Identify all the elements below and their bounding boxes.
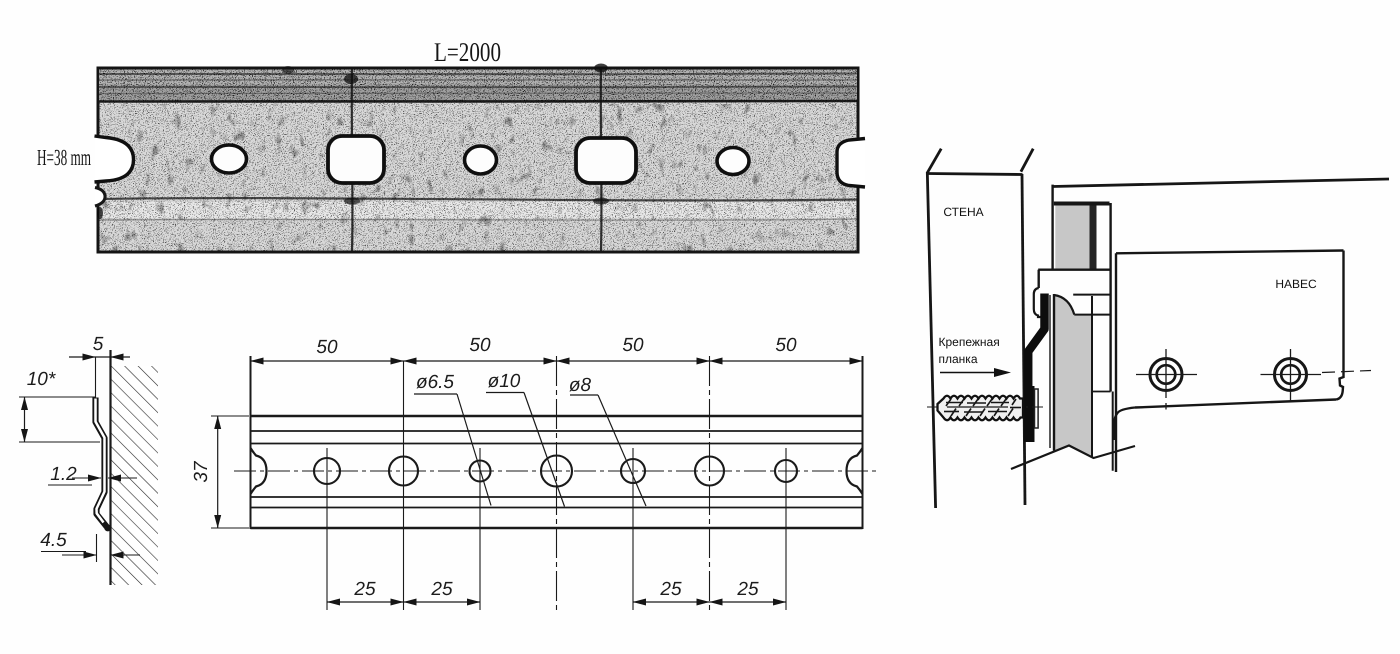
svg-text:НАВЕС: НАВЕС <box>1275 277 1317 291</box>
svg-text:25: 25 <box>430 579 453 600</box>
svg-text:37: 37 <box>191 460 212 483</box>
svg-text:планка: планка <box>939 352 978 366</box>
svg-text:СТЕНА: СТЕНА <box>943 205 983 219</box>
svg-text:25: 25 <box>353 579 376 600</box>
svg-text:4.5: 4.5 <box>40 530 67 551</box>
svg-text:50: 50 <box>469 335 491 356</box>
svg-text:50: 50 <box>622 335 644 356</box>
svg-text:H=38 mm: H=38 mm <box>37 145 91 170</box>
svg-text:50: 50 <box>775 335 797 356</box>
svg-text:ø6.5: ø6.5 <box>416 372 454 393</box>
svg-text:50: 50 <box>316 337 338 358</box>
svg-text:L=2000: L=2000 <box>434 37 501 67</box>
svg-text:5: 5 <box>93 334 104 355</box>
svg-text:25: 25 <box>736 579 759 600</box>
svg-text:Крепежная: Крепежная <box>939 335 1000 349</box>
svg-text:10*: 10* <box>27 369 56 390</box>
svg-text:ø8: ø8 <box>569 375 592 396</box>
svg-text:ø10: ø10 <box>488 371 521 392</box>
svg-text:1.2: 1.2 <box>50 464 77 485</box>
svg-text:25: 25 <box>659 579 682 600</box>
